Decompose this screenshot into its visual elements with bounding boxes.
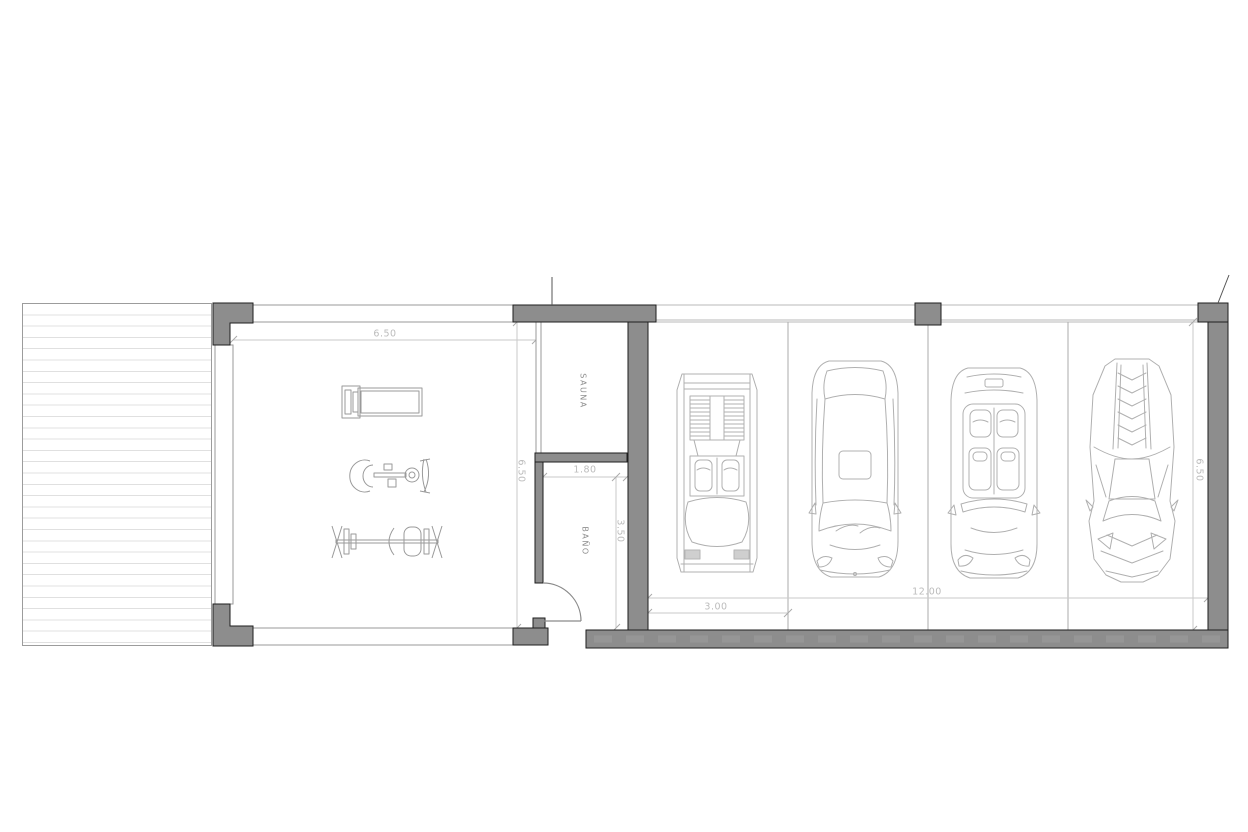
dim-garage-width: 12.00 — [912, 587, 942, 598]
convertible-top-icon — [948, 368, 1040, 578]
parking-separators — [788, 322, 1068, 630]
gym-walls — [215, 305, 541, 645]
garage-left-wall — [628, 322, 648, 632]
cable-machine-icon — [350, 459, 430, 493]
sauna-top-wall — [513, 305, 656, 322]
leader-lines — [552, 275, 1229, 305]
garage-middle-pillar — [915, 303, 941, 325]
dim-gym-width: 6.50 — [373, 329, 396, 340]
plan-linework — [0, 0, 1248, 832]
dim-parking-space-width: 3.00 — [704, 602, 727, 613]
structural-walls — [213, 303, 1228, 648]
bench-press-icon — [332, 526, 442, 558]
dimension-lines — [229, 318, 1212, 634]
angular-supercar-top-icon — [1086, 359, 1178, 582]
sauna-bano-divider — [535, 453, 627, 462]
dim-garage-depth: 6.50 — [1194, 458, 1205, 481]
dim-gym-depth: 6.50 — [516, 459, 527, 482]
garage-bottom-wall — [586, 630, 1228, 648]
bano-left-wall — [535, 462, 543, 583]
door-swing — [543, 583, 581, 621]
dim-bano-width: 1.80 — [573, 465, 596, 476]
dim-bano-depth: 3.50 — [615, 519, 626, 542]
sedan-top-icon — [809, 361, 901, 577]
gym-pillar-top-left — [213, 303, 253, 345]
garage-top-right-pillar — [1198, 303, 1228, 322]
room-label-bano: BAÑO — [581, 526, 590, 555]
classic-supercar-top-icon — [677, 374, 757, 572]
gym-pillar-bottom-left — [213, 604, 253, 646]
treadmill-icon — [342, 386, 422, 418]
floor-plan-canvas: 6.50 6.50 SAUNA 1.80 3.50 BAÑO 3.00 12.0… — [0, 0, 1248, 832]
door-jamb — [533, 618, 545, 628]
room-label-sauna: SAUNA — [579, 373, 588, 409]
garage-right-wall — [1208, 322, 1228, 630]
bottom-wall-left-segment — [513, 628, 548, 645]
dimension-ticks — [229, 318, 1212, 634]
